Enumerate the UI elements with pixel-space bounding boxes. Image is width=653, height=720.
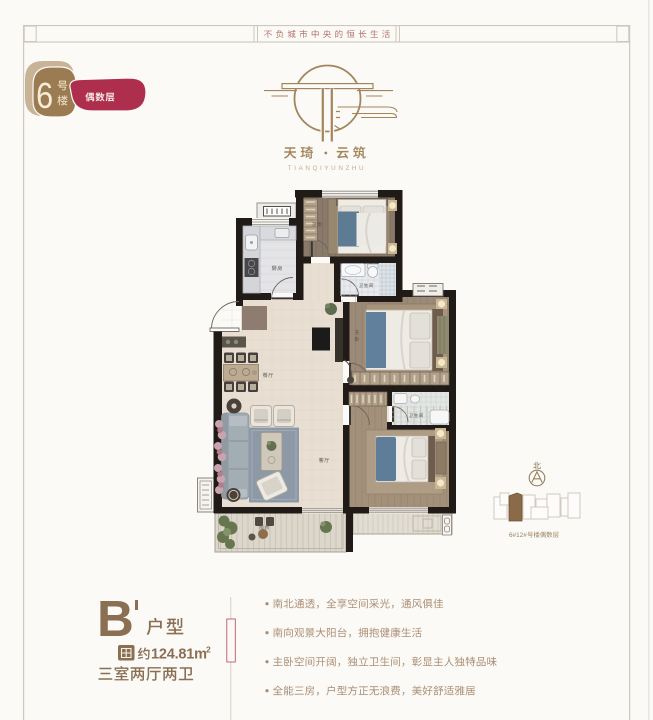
- svg-text:6: 6: [36, 77, 53, 117]
- svg-text:TIANQIYUNZHU: TIANQIYUNZHU: [288, 165, 366, 172]
- svg-text:2: 2: [206, 645, 211, 655]
- svg-text:124.81m: 124.81m: [151, 647, 207, 663]
- svg-text:6#12#: 6#12#: [509, 532, 527, 539]
- svg-text:B: B: [97, 590, 134, 647]
